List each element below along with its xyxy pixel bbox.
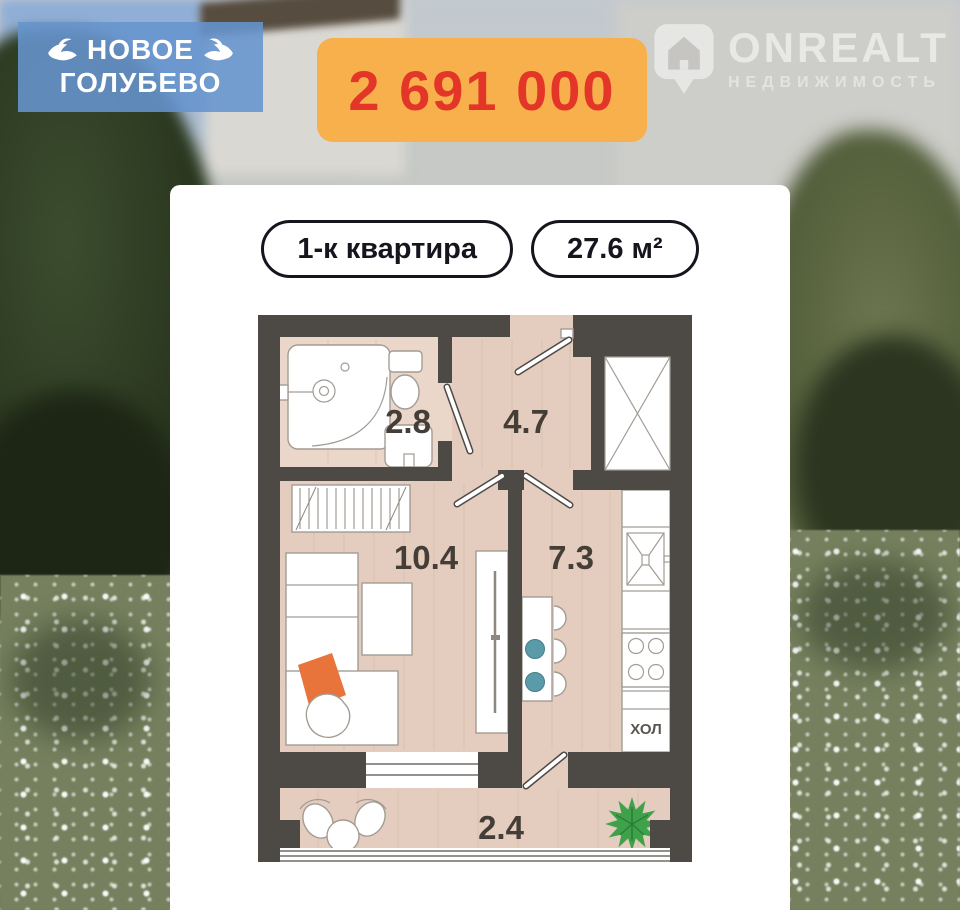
area-label: 27.6 м² (567, 233, 663, 266)
fridge-label: ХОЛ (630, 721, 661, 738)
plate (526, 673, 545, 692)
onrealt-watermark: ONREALT НЕДВИЖИМОСТЬ (652, 22, 949, 96)
room-area-hallway: 4.7 (503, 403, 549, 440)
window (366, 752, 478, 788)
listing-card: 1-к квартира 27.6 м² (170, 185, 790, 910)
kitchen-counter (622, 490, 670, 752)
project-badge-row: НОВОЕ (46, 35, 235, 66)
side-table (362, 583, 412, 655)
dining-table (522, 597, 566, 701)
pill-row: 1-к квартира 27.6 м² (170, 185, 790, 278)
apartment-type-label: 1-к квартира (297, 233, 477, 266)
floor-plan: 2.8 4.7 10.4 7.3 2.4 ХОЛ (258, 315, 692, 875)
stove (622, 633, 670, 687)
location-pin-icon (652, 22, 716, 96)
watermark-brand: ONREALT (728, 27, 949, 69)
room-area-kitchen: 7.3 (548, 539, 594, 576)
balcony-glazing (280, 848, 670, 862)
grass-shadow (800, 560, 950, 670)
project-badge: НОВОЕ ГОЛУБЕВО (18, 22, 263, 112)
shower (272, 345, 390, 449)
listing-image: НОВОЕ ГОЛУБЕВО 2 691 000 ONREALT НЕДВИЖИ… (0, 0, 960, 910)
apartment-type-pill: 1-к квартира (261, 220, 513, 278)
project-name-line2: ГОЛУБЕВО (60, 68, 222, 99)
room-area-bathroom: 2.8 (385, 403, 431, 440)
grass-shadow (10, 620, 150, 740)
tv-unit (476, 551, 508, 733)
shaft (605, 357, 670, 470)
dove-icon (201, 38, 235, 64)
dove-icon (46, 38, 80, 64)
plate (526, 640, 545, 659)
watermark-subtitle: НЕДВИЖИМОСТЬ (728, 74, 949, 92)
wardrobe (292, 485, 410, 532)
area-pill: 27.6 м² (531, 220, 699, 278)
room-area-balcony: 2.4 (478, 809, 525, 846)
price-value: 2 691 000 (348, 58, 615, 123)
project-name-line1: НОВОЕ (87, 35, 194, 66)
watermark-text: ONREALT НЕДВИЖИМОСТЬ (728, 27, 949, 92)
price-badge: 2 691 000 (317, 38, 647, 142)
room-area-living-room: 10.4 (394, 539, 459, 576)
